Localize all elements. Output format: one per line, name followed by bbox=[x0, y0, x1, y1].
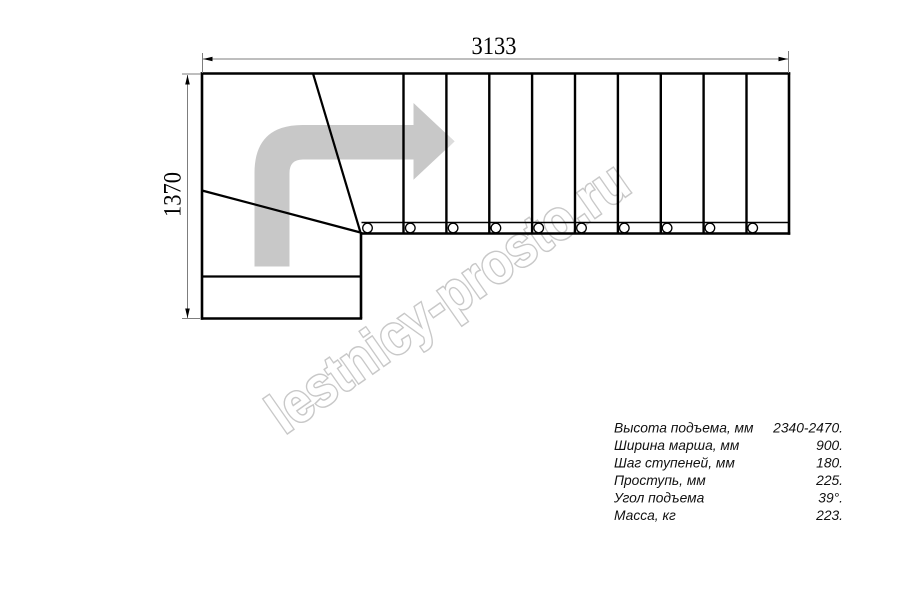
svg-text:3133: 3133 bbox=[472, 31, 517, 60]
svg-text:Ширина марша, мм: Ширина марша, мм bbox=[614, 438, 740, 453]
svg-text:Проступь, мм: Проступь, мм bbox=[614, 473, 706, 488]
svg-text:900.: 900. bbox=[816, 438, 843, 453]
svg-text:1370: 1370 bbox=[158, 172, 187, 217]
svg-text:Высота подъема, мм: Высота подъема, мм bbox=[614, 421, 754, 436]
svg-text:223.: 223. bbox=[815, 508, 843, 523]
svg-text:180.: 180. bbox=[816, 456, 843, 471]
svg-text:39°.: 39°. bbox=[818, 491, 843, 506]
svg-text:Шаг ступеней, мм: Шаг ступеней, мм bbox=[614, 456, 735, 471]
svg-text:Угол подъема: Угол подъема bbox=[613, 491, 705, 506]
svg-text:2340-2470.: 2340-2470. bbox=[772, 421, 843, 436]
svg-text:225.: 225. bbox=[815, 473, 843, 488]
svg-text:Масса, кг: Масса, кг bbox=[614, 508, 676, 523]
